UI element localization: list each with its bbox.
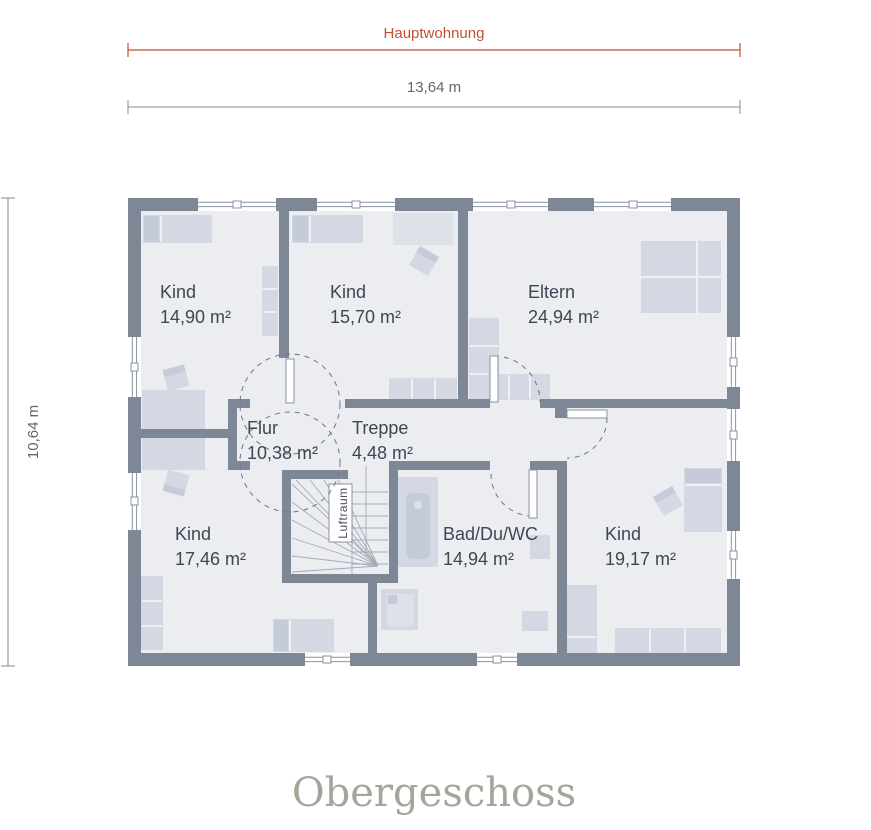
window <box>727 531 740 579</box>
bed <box>143 215 212 243</box>
window <box>317 198 395 211</box>
height-dim-label: 10,64 m <box>25 405 42 459</box>
door-leaf-eltern <box>490 356 498 402</box>
wall-corridor-north-b <box>540 399 727 408</box>
width-dim-label: 13,64 m <box>407 79 461 96</box>
window <box>477 653 517 666</box>
window <box>594 198 671 211</box>
room-label-bad-area: 14,94 m² <box>443 549 514 569</box>
double-bed <box>641 241 721 313</box>
dimension-height: 10,64 m <box>1 198 42 666</box>
window <box>198 198 276 211</box>
wall-stair-south <box>282 574 398 583</box>
bed <box>273 619 334 652</box>
window <box>473 198 548 211</box>
room-label-kind2-area: 15,70 m² <box>330 307 401 327</box>
wall-kind1-kind3 <box>141 429 228 438</box>
room-label-eltern-area: 24,94 m² <box>528 307 599 327</box>
dimension-width: 13,64 m <box>128 79 740 114</box>
wall-bad-west <box>368 583 377 653</box>
door-leaf-kind4 <box>567 410 607 418</box>
room-label-treppe-name: Treppe <box>352 418 408 438</box>
window <box>727 409 740 461</box>
wall-bad-east <box>557 470 567 653</box>
wall-flur-stub-top <box>228 399 250 408</box>
floor-plan-drawing: Hauptwohnung 13,64 m 10,64 m <box>0 0 871 830</box>
bed <box>292 215 363 243</box>
wall-bad-north-b <box>530 461 567 470</box>
bathtub <box>397 477 438 567</box>
window <box>305 653 350 666</box>
room-label-treppe-area: 4,48 m² <box>352 443 413 463</box>
dimension-zone: Hauptwohnung <box>128 25 740 57</box>
room-label-kind2-name: Kind <box>330 282 366 302</box>
luftraum-label: Luftraum <box>336 487 350 538</box>
dresser <box>393 213 453 245</box>
room-label-eltern-name: Eltern <box>528 282 575 302</box>
sideboard <box>615 628 721 653</box>
room-label-flur-name: Flur <box>247 418 278 438</box>
door-leaf-kind2 <box>286 359 294 403</box>
room-label-kind1-name: Kind <box>160 282 196 302</box>
bed <box>684 468 722 532</box>
room-label-kind4-name: Kind <box>605 524 641 544</box>
wardrobe <box>389 378 457 402</box>
wardrobe <box>262 266 278 336</box>
window <box>128 473 141 530</box>
washbasin <box>522 611 548 631</box>
shower <box>381 589 418 630</box>
door-leaf-bad <box>529 470 537 518</box>
wall-kind1-kind2 <box>279 211 289 358</box>
room-label-kind1-area: 14,90 m² <box>160 307 231 327</box>
wardrobe <box>565 585 597 653</box>
floor-title: Obergeschoss <box>292 770 576 816</box>
room-label-kind4-area: 19,17 m² <box>605 549 676 569</box>
wall-corridor-north-a <box>345 399 490 408</box>
zone-label: Hauptwohnung <box>384 25 485 42</box>
window <box>727 337 740 387</box>
room-label-kind3-name: Kind <box>175 524 211 544</box>
wall-stair-east <box>389 470 398 583</box>
window <box>128 337 141 397</box>
wall-kind2-eltern <box>458 211 468 399</box>
floor-plan-page: Hauptwohnung 13,64 m 10,64 m <box>0 0 871 830</box>
room-label-flur-area: 10,38 m² <box>247 443 318 463</box>
wall-stub <box>555 408 567 418</box>
wardrobe <box>141 576 163 650</box>
room-label-kind3-area: 17,46 m² <box>175 549 246 569</box>
room-label-bad-name: Bad/Du/WC <box>443 524 538 544</box>
wall-stair-west <box>282 470 291 583</box>
wall-flur-west <box>228 399 237 470</box>
